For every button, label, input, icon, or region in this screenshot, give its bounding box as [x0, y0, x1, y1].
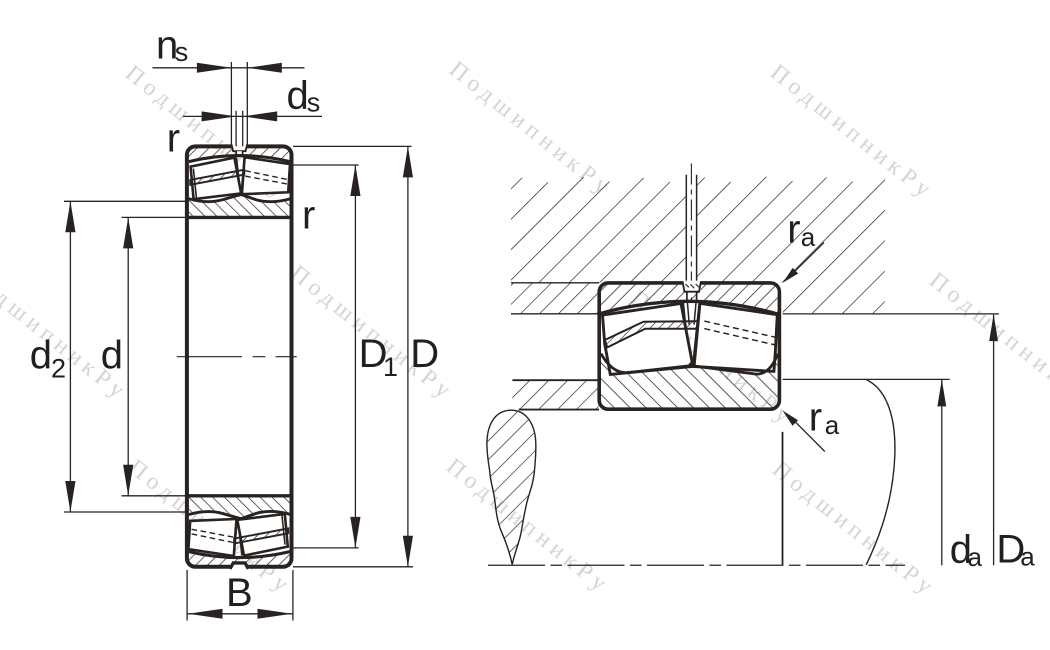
svg-text:d: d: [287, 74, 309, 118]
svg-text:a: a: [1020, 542, 1035, 572]
svg-text:r: r: [787, 208, 800, 252]
svg-text:a: a: [968, 542, 983, 572]
svg-text:a: a: [825, 410, 840, 440]
svg-text:s: s: [307, 88, 321, 118]
svg-text:r: r: [302, 194, 315, 238]
svg-text:a: a: [801, 222, 816, 252]
svg-text:d: d: [101, 333, 123, 377]
svg-text:B: B: [226, 571, 253, 615]
svg-text:1: 1: [383, 352, 398, 382]
svg-text:r: r: [167, 117, 180, 161]
svg-text:s: s: [175, 37, 189, 67]
svg-text:ПодшипникРу: ПодшипникРу: [767, 456, 941, 602]
svg-text:d: d: [30, 333, 52, 377]
svg-text:r: r: [809, 396, 822, 440]
svg-text:D: D: [410, 332, 439, 376]
svg-text:2: 2: [51, 354, 66, 384]
